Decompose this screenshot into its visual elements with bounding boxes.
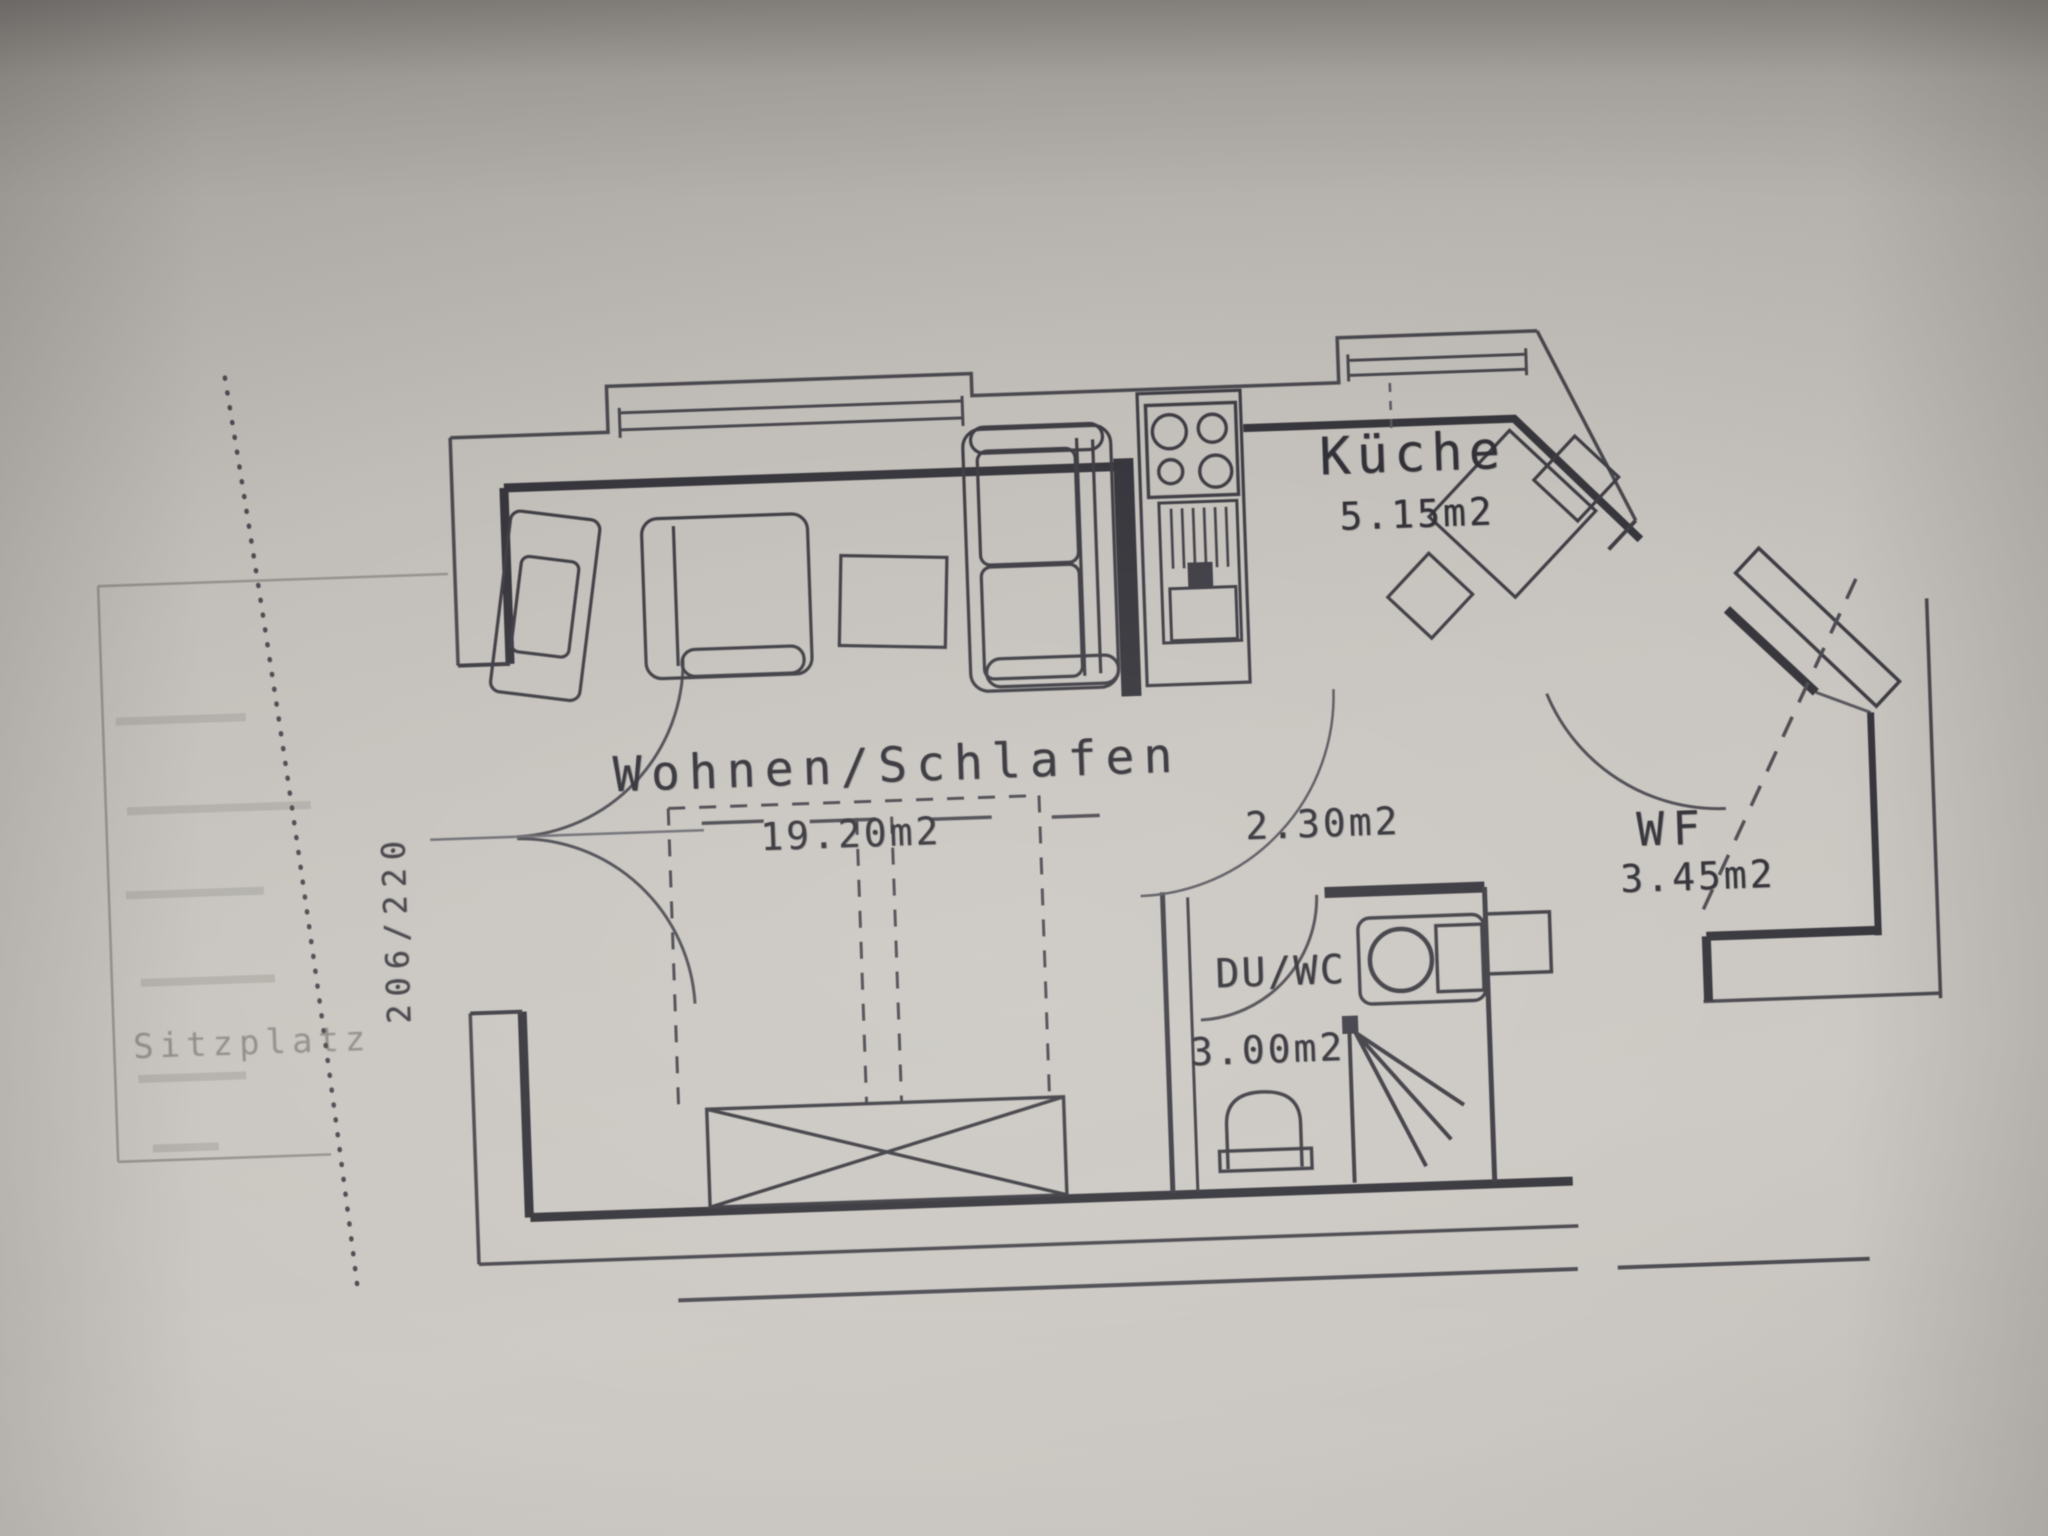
floor-plan-drawing: Wohnen/Schlafen 19.20m2 Küche 5.15m2 2.3… (0, 0, 2048, 1536)
ground-line (678, 1259, 1869, 1301)
wardrobe-icon (707, 1097, 1067, 1207)
stool-icon (1386, 552, 1474, 640)
stove-icon (1145, 402, 1238, 497)
room-area-kitchen: 5.15m2 (1339, 489, 1496, 538)
kitchen-sink-icon (1159, 500, 1242, 643)
hallway-door-swing-icon (1134, 689, 1341, 896)
toilet-icon (1357, 914, 1486, 1004)
room-area-living: 19.20m2 (759, 809, 942, 859)
floor-plan-photo: Wohnen/Schlafen 19.20m2 Küche 5.15m2 2.3… (0, 0, 2048, 1536)
room-label-bathroom: DU/WC (1215, 947, 1347, 998)
window-icon (619, 396, 963, 438)
room-label-kitchen: Küche (1318, 421, 1507, 487)
patio-double-door-swing-icon (424, 659, 710, 1012)
room-label-entry: WF (1636, 800, 1709, 856)
room-area-hallway: 2.30m2 (1244, 799, 1401, 848)
terrace-label: Sitzplatz (133, 1019, 372, 1067)
room-area-bathroom: 3.00m2 (1189, 1025, 1346, 1074)
terrace-scribbles (116, 715, 323, 1149)
armchair-icon (641, 513, 812, 679)
washbasin-icon (1217, 1090, 1312, 1171)
shower-icon (1343, 1013, 1467, 1183)
room-area-entry: 3.45m2 (1619, 852, 1776, 901)
side-table-icon (836, 552, 950, 651)
